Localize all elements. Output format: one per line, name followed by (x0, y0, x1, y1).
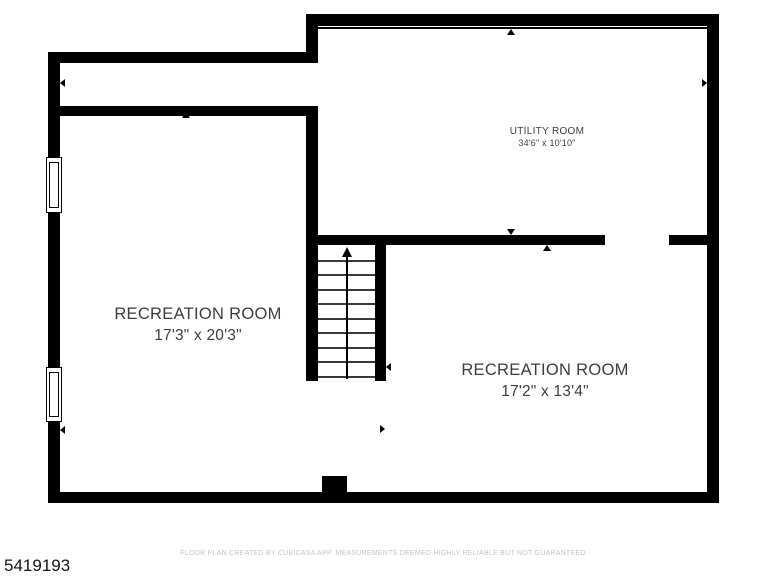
window-pane (49, 372, 59, 417)
door-marker-rooms-boundary (380, 425, 385, 433)
plan-id: 5419193 (4, 556, 70, 576)
door-marker-interior-upper (182, 112, 190, 118)
wall-stairs-east (375, 245, 386, 381)
window-left-upper (46, 157, 62, 213)
room-name: UTILITY ROOM (510, 126, 585, 137)
room-label-recreation-room-right: RECREATION ROOM 17'2" x 13'4" (461, 361, 628, 401)
wall-top-left (48, 52, 318, 63)
wall-left (48, 52, 60, 503)
wall-bottom (48, 492, 719, 503)
floor-plan-canvas: UTILITY ROOM 34'6" x 10'10" RECREATION R… (0, 0, 768, 576)
room-label-utility-room: UTILITY ROOM 34'6" x 10'10" (510, 126, 585, 148)
wall-utility-bottom-east (669, 235, 719, 245)
staircase (318, 245, 375, 381)
stair-direction-arrow-icon (342, 247, 352, 257)
wall-top-right (306, 14, 719, 26)
room-name: RECREATION ROOM (114, 305, 281, 324)
door-marker-left-lower (60, 426, 65, 434)
room-dimensions: 17'2" x 13'4" (461, 383, 628, 401)
door-marker-utility-right (702, 79, 707, 87)
door-marker-stairs-east (386, 363, 391, 371)
wall-utility-bottom-west (306, 235, 605, 245)
room-name: RECREATION ROOM (461, 361, 628, 380)
chimney-bump (322, 476, 347, 492)
wall-right (707, 14, 719, 503)
room-dimensions: 34'6" x 10'10" (510, 138, 585, 148)
room-label-recreation-room-left: RECREATION ROOM 17'3" x 20'3" (114, 305, 281, 345)
door-marker-utility-top (507, 29, 515, 35)
door-marker-utility-bottom-south (543, 245, 551, 251)
window-left-lower (46, 367, 62, 422)
door-marker-utility-bottom-north (507, 229, 515, 235)
window-pane (49, 162, 59, 208)
stair-direction-line (346, 255, 348, 379)
room-dimensions: 17'3" x 20'3" (114, 327, 281, 345)
door-marker-left-upper (60, 79, 65, 87)
disclaimer-text: FLOOR PLAN CREATED BY CUBICASA APP. MEAS… (0, 550, 768, 557)
